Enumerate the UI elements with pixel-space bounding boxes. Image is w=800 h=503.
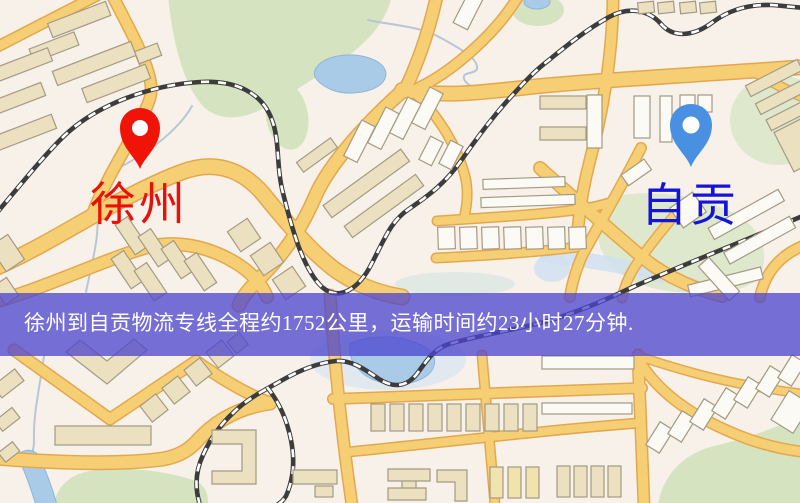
destination-label: 自贡 [641,180,739,231]
route-banner: 徐州到自贡物流专线全程约1752公里，运输时间约23小时27分钟. [0,293,800,356]
logistics-route-map: 徐州 自贡 徐州到自贡物流专线全程约1752公里，运输时间约23小时27分钟. [0,0,800,503]
destination-pin-hole [683,117,700,134]
route-banner-text: 徐州到自贡物流专线全程约1752公里，运输时间约23小时27分钟. [24,311,634,335]
map-canvas: 徐州 自贡 徐州到自贡物流专线全程约1752公里，运输时间约23小时27分钟. [0,0,800,503]
origin-label: 徐州 [90,179,188,230]
origin-pin-hole [132,120,148,136]
